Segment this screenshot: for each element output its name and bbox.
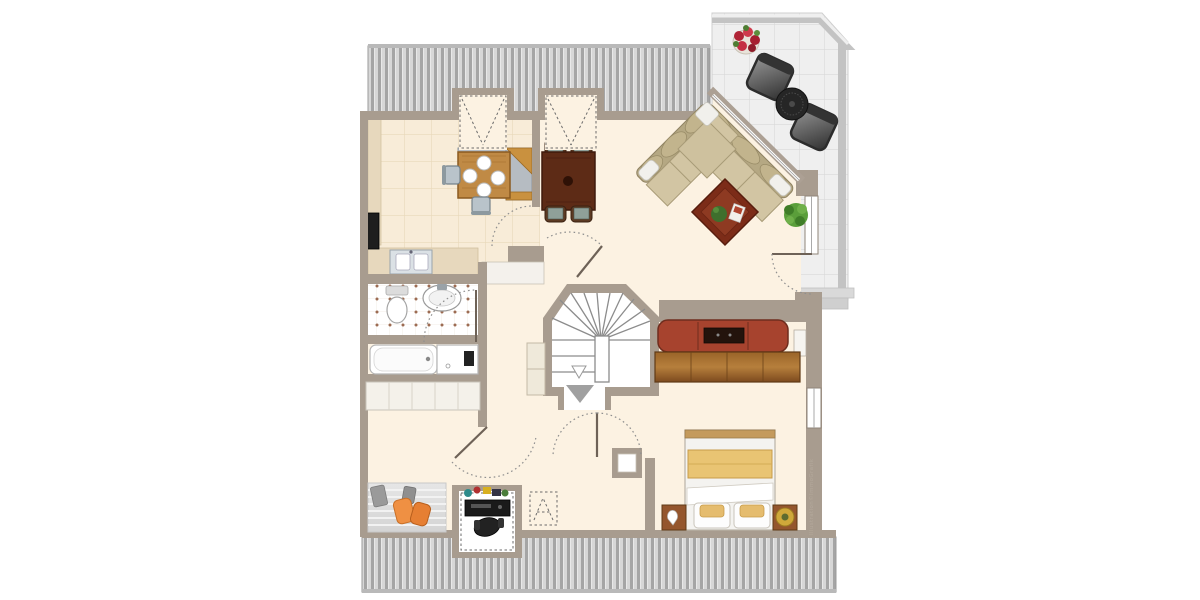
kitchen-chair-bottom bbox=[471, 197, 491, 215]
shower bbox=[437, 345, 478, 374]
toilet bbox=[386, 286, 408, 323]
wardrobe bbox=[366, 382, 480, 410]
roof-slope-south bbox=[362, 537, 836, 593]
study-rug bbox=[368, 483, 446, 532]
dining-set bbox=[542, 140, 595, 222]
floorplan-canvas: Illustration©ImmoGrafik bbox=[0, 0, 1200, 600]
duct-opening bbox=[618, 454, 636, 472]
watermark-text: Illustration©ImmoGrafik bbox=[808, 458, 815, 535]
double-bed bbox=[685, 430, 775, 530]
kitchen-counter-sink bbox=[368, 248, 478, 275]
staircase bbox=[543, 284, 659, 410]
bathtub bbox=[370, 345, 437, 374]
tv-sofa bbox=[658, 320, 788, 352]
desk-dormer bbox=[452, 485, 522, 558]
pillow-left bbox=[694, 503, 730, 528]
bathroom bbox=[366, 284, 480, 410]
desk bbox=[465, 500, 510, 516]
nightstand-left bbox=[662, 505, 686, 530]
pillow-right bbox=[734, 503, 770, 528]
bistro-table bbox=[776, 88, 808, 120]
nightstand-right bbox=[773, 505, 797, 530]
terrace-window bbox=[805, 196, 818, 254]
potted-plant bbox=[784, 203, 808, 227]
kitchen-dormer bbox=[452, 88, 514, 150]
sideboard bbox=[655, 352, 800, 382]
kitchen-table bbox=[458, 152, 510, 198]
hall-cabinet bbox=[527, 343, 545, 395]
dining-dormer bbox=[538, 88, 604, 150]
kitchen-chair-left bbox=[442, 165, 460, 185]
stair-newel bbox=[595, 336, 609, 382]
floorplan-svg: Illustration©ImmoGrafik bbox=[0, 0, 1200, 600]
bedroom-window bbox=[807, 388, 821, 428]
washbasin bbox=[423, 284, 461, 311]
